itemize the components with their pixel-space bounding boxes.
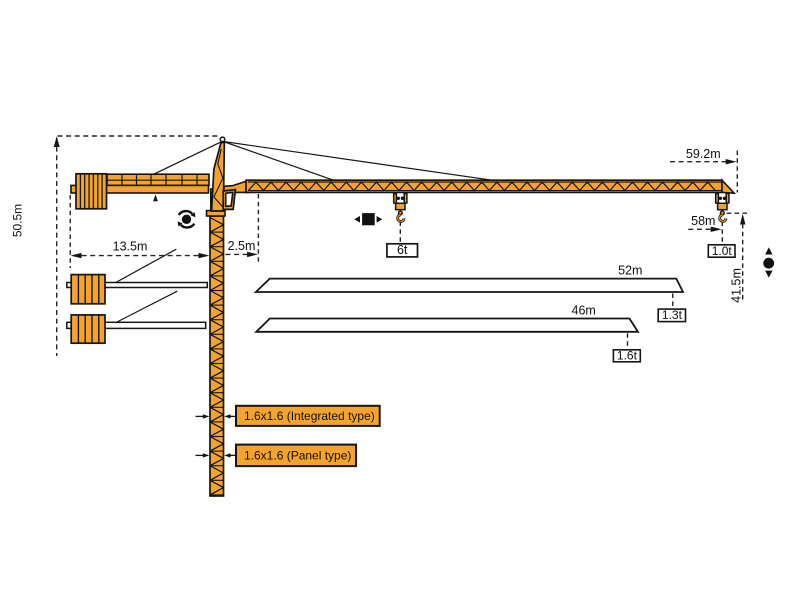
svg-text:50.5m: 50.5m — [11, 204, 25, 237]
svg-text:1.6x1.6 (Integrated type): 1.6x1.6 (Integrated type) — [244, 409, 375, 423]
svg-text:58m: 58m — [691, 214, 715, 228]
svg-text:41.5m: 41.5m — [729, 268, 743, 303]
svg-text:1.6t: 1.6t — [617, 349, 638, 363]
svg-text:1.6x1.6 (Panel type): 1.6x1.6 (Panel type) — [244, 449, 351, 463]
svg-text:2.5m: 2.5m — [228, 239, 256, 253]
svg-text:1.0t: 1.0t — [712, 244, 733, 258]
svg-text:46m: 46m — [572, 304, 596, 318]
svg-text:1.3t: 1.3t — [662, 308, 683, 322]
svg-text:52m: 52m — [618, 264, 642, 278]
svg-text:13.5m: 13.5m — [113, 240, 148, 254]
svg-text:6t: 6t — [397, 243, 408, 257]
svg-text:59.2m: 59.2m — [686, 147, 721, 161]
